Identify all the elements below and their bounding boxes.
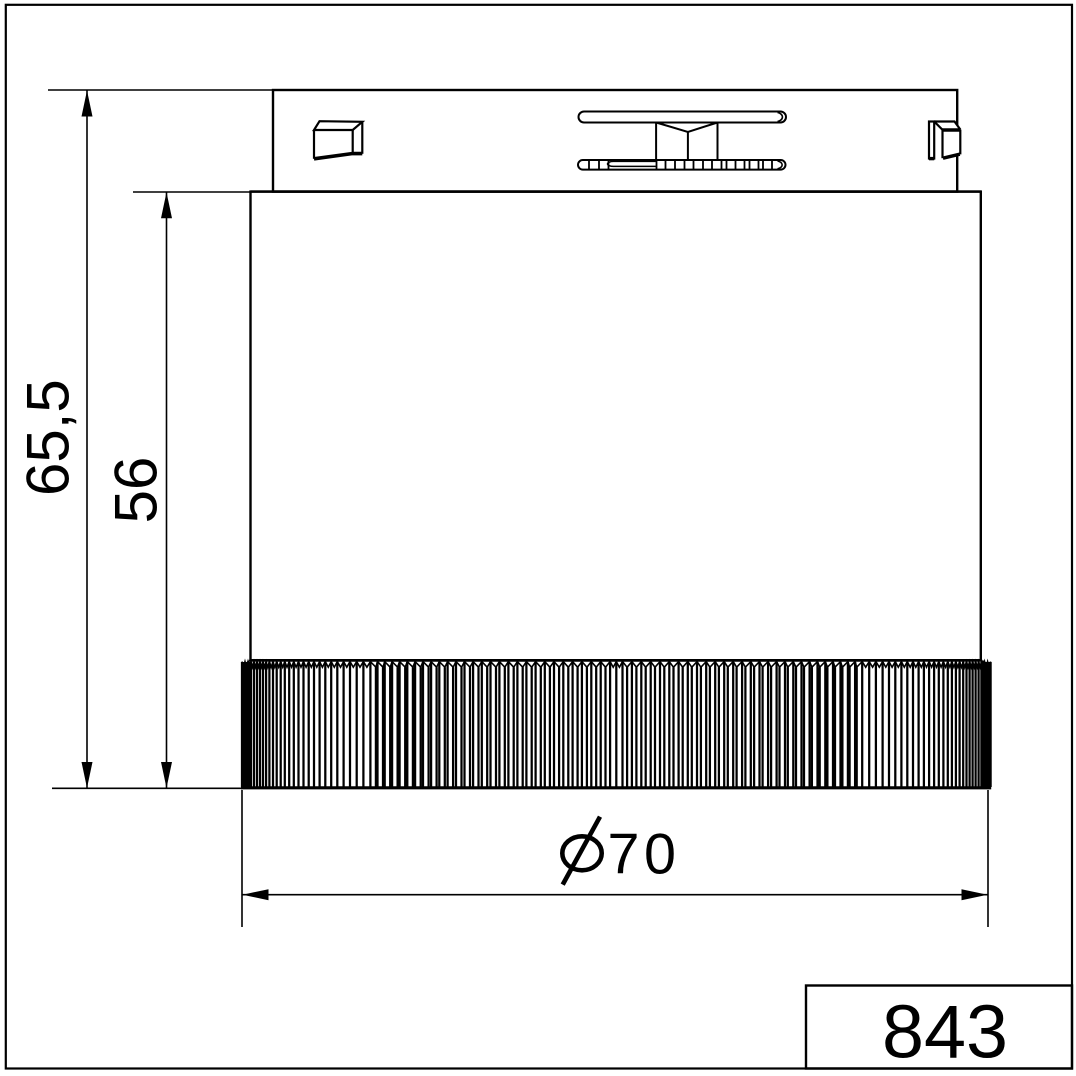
svg-text:70: 70 (608, 822, 681, 886)
svg-text:65,5: 65,5 (15, 379, 82, 496)
svg-text:56: 56 (103, 457, 170, 524)
svg-text:843: 843 (882, 990, 1008, 1074)
